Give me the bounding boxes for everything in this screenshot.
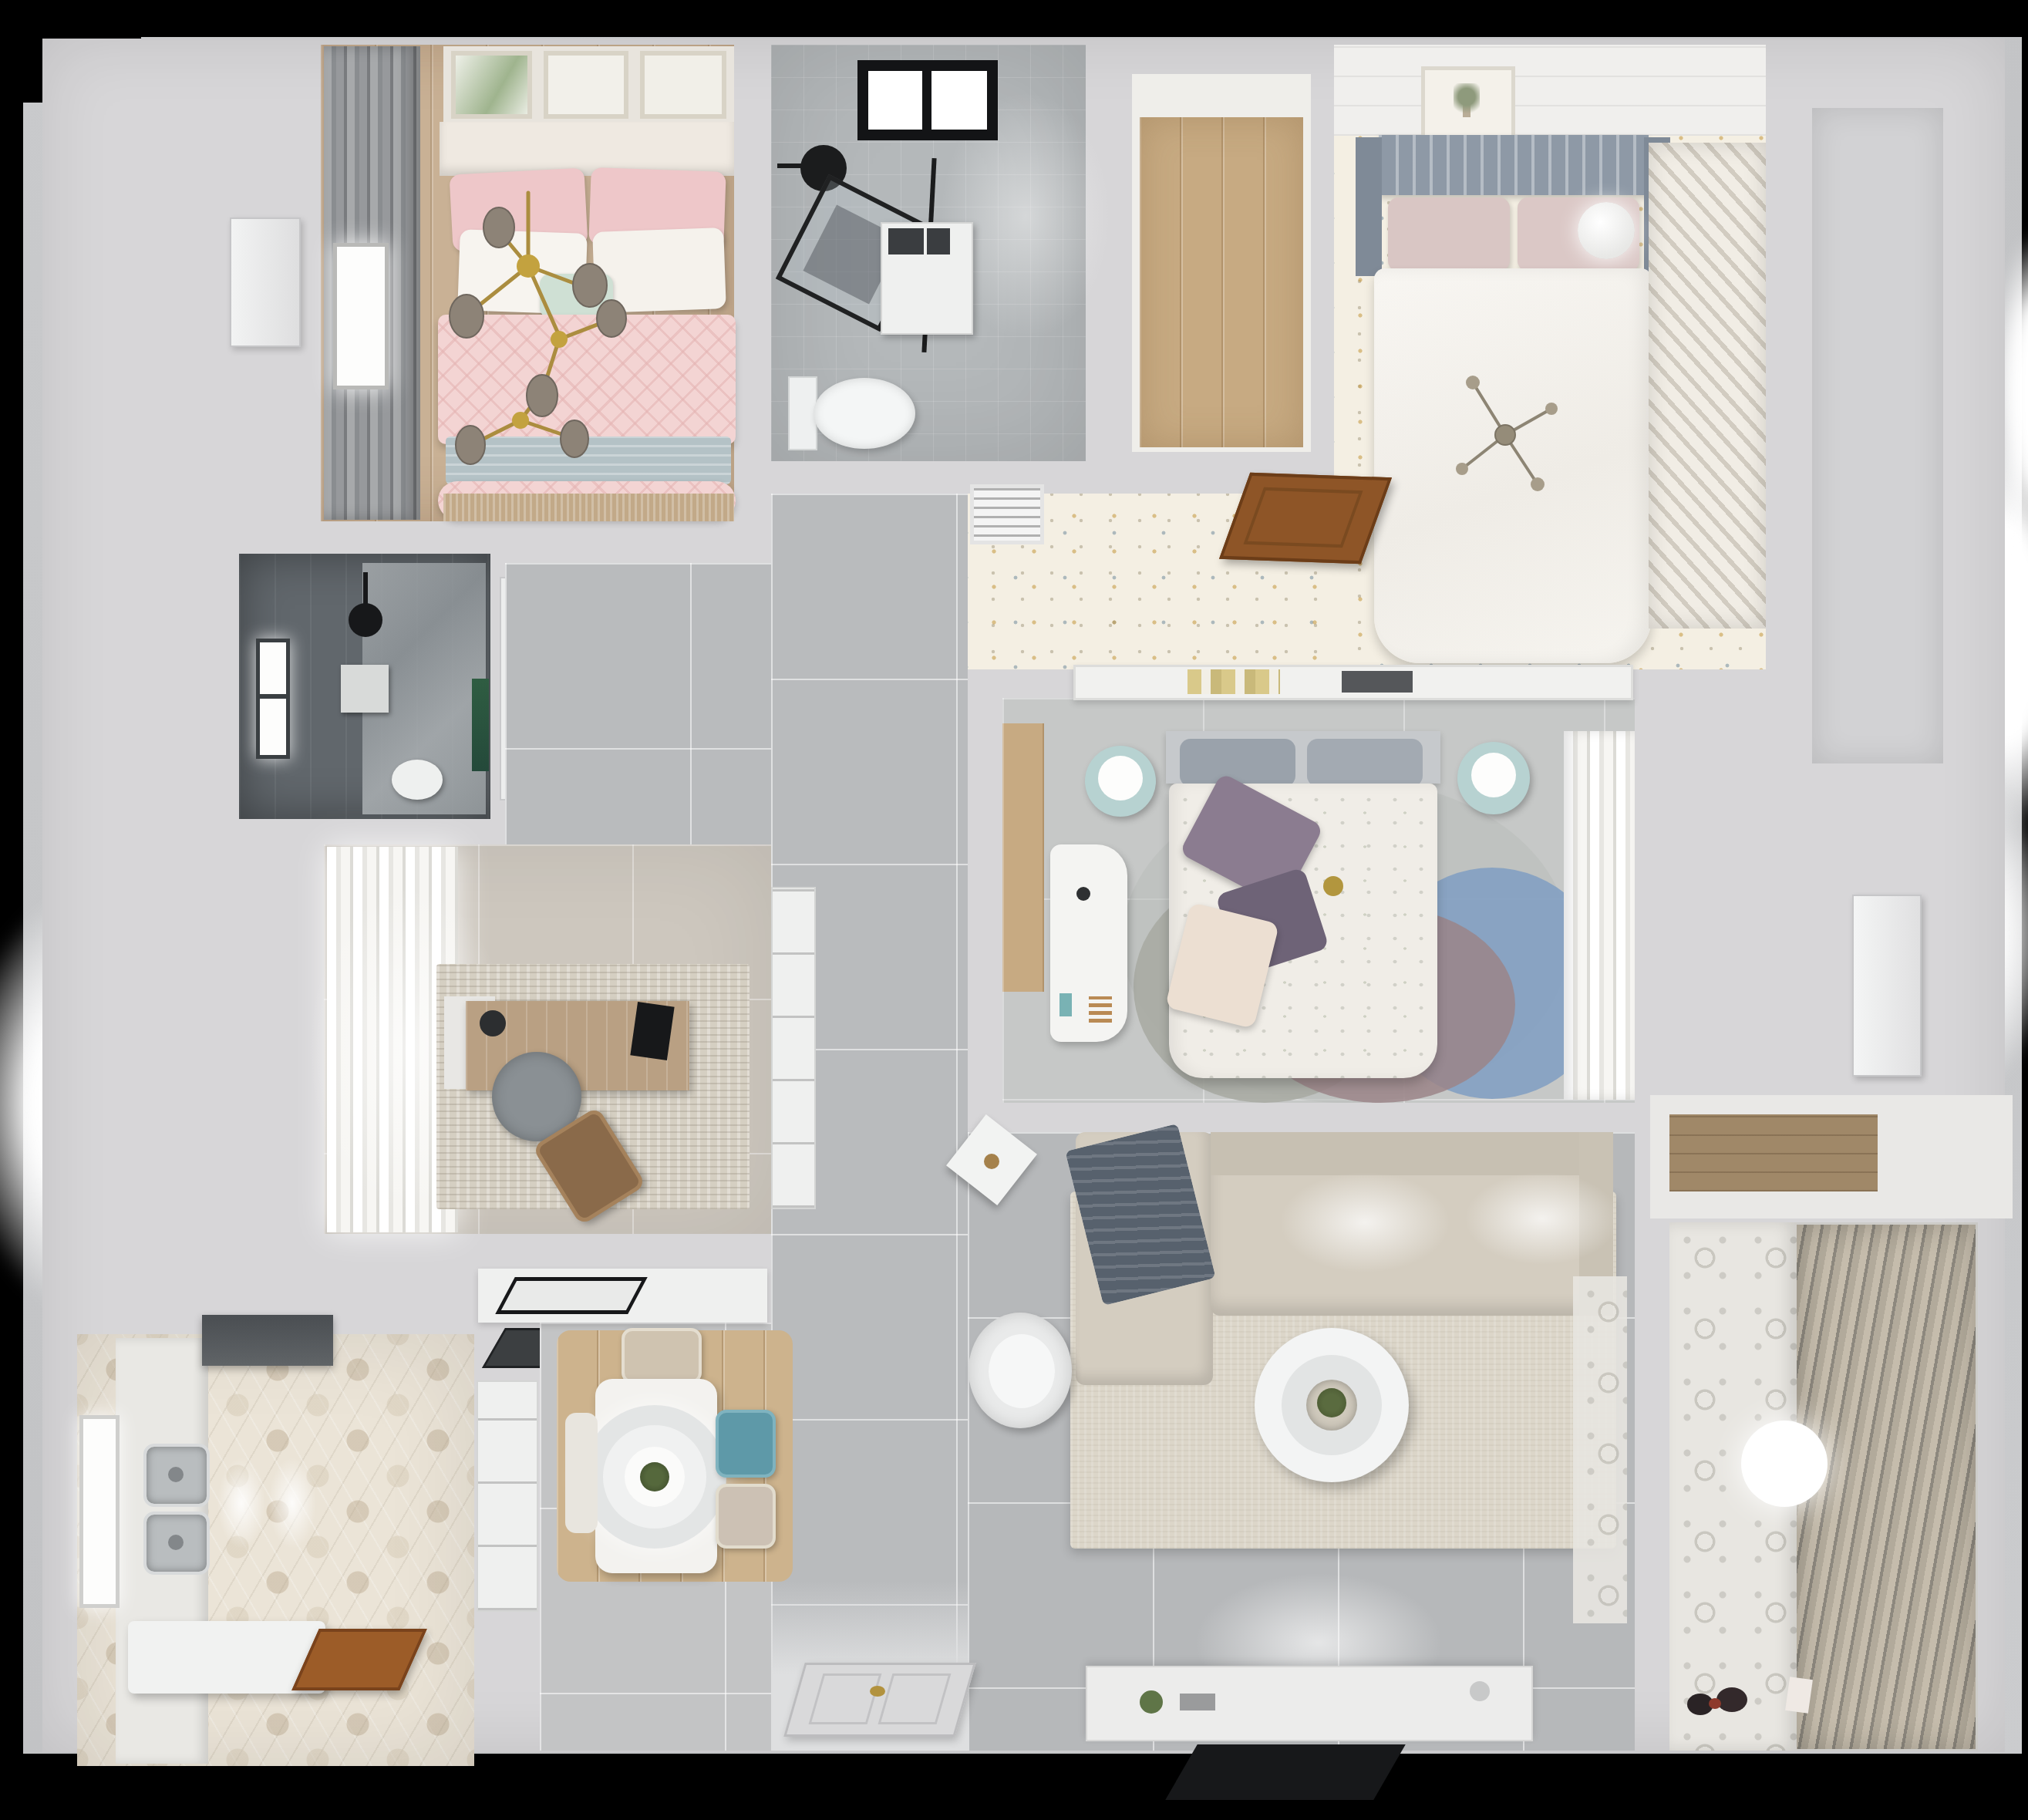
washer-panel	[888, 228, 924, 254]
cooktop-black	[495, 1277, 648, 1314]
light-reflection	[217, 1458, 265, 1549]
room-hallway-upper	[505, 563, 771, 844]
gold-ornament	[1323, 876, 1343, 896]
door-handle-gold	[870, 1686, 885, 1697]
chair-beige	[622, 1328, 702, 1384]
pantry-cabinet	[477, 1380, 538, 1612]
art-frame	[544, 51, 628, 119]
books	[1187, 669, 1280, 694]
console-items	[1180, 1694, 1215, 1710]
bed-headboard	[440, 122, 734, 176]
headboard-wing	[1356, 137, 1382, 276]
window	[333, 243, 389, 389]
louvered-blinds	[1797, 1225, 1976, 1749]
desk-item-teal	[1059, 993, 1072, 1016]
pillow-gray	[1180, 739, 1295, 787]
desk-object	[480, 1010, 506, 1036]
hall-bookcase	[771, 887, 816, 1209]
ceiling-light	[1741, 1421, 1828, 1507]
frame-art-plant	[1454, 83, 1480, 122]
stool-top	[1471, 753, 1516, 797]
stool-top	[1098, 756, 1143, 800]
patterned-runner	[1573, 1276, 1627, 1623]
toy-dark	[1716, 1687, 1747, 1712]
curtains-white	[1564, 731, 1635, 1100]
window-pane	[931, 71, 987, 130]
art-frame	[451, 51, 532, 119]
window	[256, 639, 290, 759]
sofa-backrest	[1211, 1132, 1613, 1175]
lamp-reflection	[1280, 1172, 1450, 1272]
table-plant	[1317, 1388, 1346, 1417]
toilet-bowl	[814, 378, 915, 449]
wall-shelf	[341, 665, 389, 713]
pillow-gray	[1307, 739, 1423, 787]
wood-shelf	[1669, 1114, 1878, 1191]
chair-teal	[716, 1410, 776, 1478]
shower-head	[349, 603, 382, 637]
toy-red	[1709, 1698, 1721, 1709]
foot-rug-tan	[443, 494, 734, 521]
art-frame	[640, 51, 726, 119]
desk-item	[1076, 887, 1090, 901]
console-plant	[1140, 1690, 1163, 1714]
pendant-plant	[640, 1462, 669, 1491]
wall-niche-right	[1812, 108, 1943, 763]
armchair-seat	[989, 1334, 1055, 1408]
white-door-open	[1852, 895, 1922, 1077]
toilet-bowl	[392, 760, 443, 800]
gold-chandelier	[428, 189, 628, 467]
console-item	[1470, 1681, 1490, 1701]
floor-plan-canvas	[0, 0, 2028, 1820]
closet-wood-floor	[1140, 117, 1303, 447]
sink-drain	[168, 1467, 184, 1482]
monitor	[630, 1002, 674, 1060]
side-table-item	[984, 1154, 999, 1169]
ceiling-panels	[1334, 45, 1766, 136]
window	[79, 1415, 120, 1608]
books	[1342, 671, 1413, 693]
plant-green	[472, 679, 489, 771]
wood-nook	[1002, 723, 1044, 992]
chair-beige	[716, 1484, 776, 1549]
ball-lamp	[1578, 202, 1635, 259]
door-panel	[1243, 487, 1363, 548]
vent-grille	[970, 484, 1044, 544]
sputnik-light	[1428, 369, 1582, 507]
bench-white	[565, 1413, 598, 1533]
light-reflection	[268, 1458, 316, 1549]
shower-arm	[777, 163, 813, 168]
desk-item-gold	[1089, 996, 1112, 1023]
tv-flat	[1165, 1744, 1406, 1800]
pillow-blush	[1388, 197, 1510, 271]
window-mullion	[258, 694, 288, 699]
bed-headboard-slatted	[1379, 135, 1649, 195]
lamp-reflection	[1465, 1172, 1619, 1265]
wardrobe-louvered	[1649, 143, 1766, 629]
range-hood	[202, 1315, 333, 1366]
white-door-open	[230, 217, 301, 347]
window-pane	[868, 71, 922, 130]
washer-panel	[927, 228, 950, 254]
toy-white-bag	[1785, 1677, 1813, 1714]
sink-drain	[168, 1535, 184, 1550]
shower-arm	[363, 572, 368, 606]
